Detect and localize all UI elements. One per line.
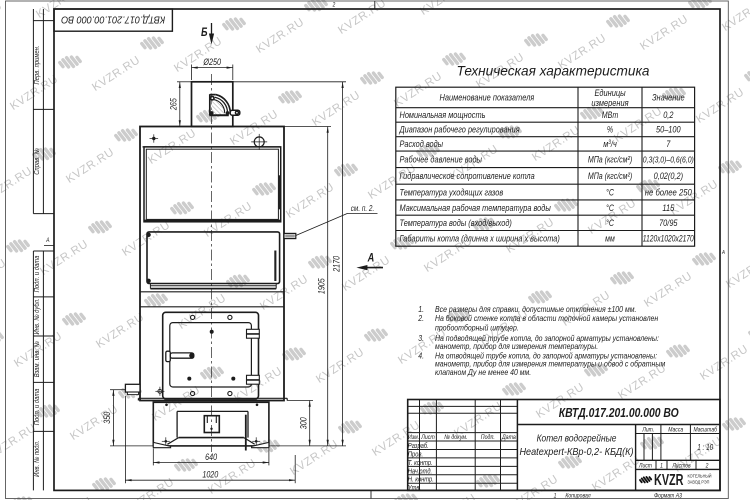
svg-text:265: 265	[169, 98, 179, 111]
svg-text:Котел водогрейные: Котел водогрейные	[537, 432, 617, 444]
svg-text:МВт: МВт	[602, 110, 619, 120]
svg-text:МПа (кгс/см²): МПа (кгс/см²)	[588, 171, 633, 181]
svg-text:Т. контр.: Т. контр.	[408, 459, 433, 467]
svg-text:3.: 3.	[418, 333, 424, 343]
svg-text:измерения: измерения	[591, 97, 629, 108]
svg-text:пробоотборный штуцер.: пробоотборный штуцер.	[435, 323, 519, 333]
svg-text:Подп. и дата: Подп. и дата	[32, 388, 41, 425]
svg-text:°С: °С	[606, 203, 614, 213]
svg-text:Номинальная мощность: Номинальная мощность	[400, 109, 486, 120]
svg-text:2: 2	[332, 2, 336, 9]
svg-text:4.: 4.	[418, 351, 424, 361]
svg-text:Температура воды (вход/выход): Температура воды (вход/выход)	[400, 217, 513, 228]
svg-text:Ø250: Ø250	[202, 57, 221, 67]
svg-text:1905: 1905	[317, 278, 327, 294]
svg-text:%: %	[607, 125, 613, 135]
svg-text:Расход воды: Расход воды	[400, 138, 444, 149]
svg-text:0,02(0,2): 0,02(0,2)	[654, 170, 684, 181]
svg-text:0,2: 0,2	[663, 109, 674, 120]
svg-text:Н. контр.: Н. контр.	[408, 476, 434, 484]
svg-text:КВТД.017.201.00.000 ВО: КВТД.017.201.00.000 ВО	[559, 405, 679, 420]
svg-text:Утв.: Утв.	[407, 484, 421, 492]
svg-text:Рабочее давление воды: Рабочее давление воды	[400, 154, 482, 165]
svg-text:Габариты котла (длинна х ширин: Габариты котла (длинна х ширина х высота…	[400, 233, 560, 244]
svg-text:°С: °С	[606, 218, 614, 228]
svg-text:Разраб.: Разраб.	[408, 441, 429, 450]
svg-text:ЗАВОД РЭП: ЗАВОД РЭП	[688, 479, 710, 485]
svg-text:Диапазон рабочего регулировани: Диапазон рабочего регулирования	[399, 124, 520, 135]
svg-text:Лит.: Лит.	[642, 427, 655, 434]
svg-text:Взам. инв. №: Взам. инв. №	[33, 341, 41, 377]
svg-text:Подп.: Подп.	[481, 435, 495, 442]
svg-text:Температура уходящих газов: Температура уходящих газов	[400, 186, 504, 197]
svg-text:Пров.: Пров.	[408, 451, 423, 459]
svg-text:Инв. № дубл.: Инв. № дубл.	[32, 298, 41, 334]
svg-text:Подп. и дата: Подп. и дата	[32, 255, 41, 292]
svg-text:Листов: Листов	[671, 463, 690, 470]
svg-text:Б: Б	[201, 27, 208, 39]
svg-text:70/95: 70/95	[659, 217, 678, 228]
svg-text:KVZR: KVZR	[654, 472, 684, 489]
svg-text:640: 640	[205, 452, 217, 462]
svg-text:1 : 10: 1 : 10	[697, 442, 713, 452]
svg-text:Перв. примен.: Перв. примен.	[33, 46, 41, 85]
svg-text:Инв. № подл.: Инв. № подл.	[32, 441, 41, 477]
svg-text:мм: мм	[605, 234, 615, 244]
svg-text:Максимальная рабочая температу: Максимальная рабочая температура воды	[400, 202, 551, 213]
svg-text:Дата: Дата	[501, 435, 516, 442]
svg-text:см. п. 2.: см. п. 2.	[351, 203, 375, 213]
svg-text:Лист: Лист	[638, 463, 652, 470]
svg-text:Масса: Масса	[668, 427, 683, 434]
svg-text:Техническая характеристика: Техническая характеристика	[457, 62, 650, 78]
svg-text:Гидравлическое сопротивление к: Гидравлическое сопротивление котла	[400, 170, 535, 181]
svg-text:7: 7	[666, 138, 670, 149]
svg-text:50–100: 50–100	[656, 124, 681, 135]
svg-text:1: 1	[660, 463, 663, 470]
svg-text:КОТЕЛЬНЫЙ: КОТЕЛЬНЫЙ	[688, 473, 712, 479]
svg-text:№ докум.: № докум.	[444, 433, 467, 441]
svg-text:0,3(3,0)–0,6(6,0): 0,3(3,0)–0,6(6,0)	[643, 156, 694, 165]
svg-text:115: 115	[662, 202, 674, 213]
svg-text:Нач.отд.: Нач.отд.	[408, 467, 432, 476]
svg-text:МПа (кгс/см²): МПа (кгс/см²)	[588, 155, 633, 165]
svg-text:2170: 2170	[332, 255, 342, 272]
svg-text:1120х1020х2170: 1120х1020х2170	[643, 234, 695, 244]
svg-text:Формат А3: Формат А3	[654, 493, 683, 499]
svg-text:Heatexpert-КВр-0,2- КБД(К): Heatexpert-КВр-0,2- КБД(К)	[520, 446, 634, 458]
svg-text:А: А	[367, 253, 375, 265]
svg-text:А: А	[45, 238, 49, 245]
svg-text:КВТД.017.201.00.000 ВО: КВТД.017.201.00.000 ВО	[61, 14, 165, 26]
svg-text:А: А	[721, 250, 725, 257]
svg-text:350: 350	[102, 411, 112, 423]
svg-text:Масштаб: Масштаб	[693, 427, 717, 434]
svg-text:1020: 1020	[202, 470, 218, 480]
svg-text:2.: 2.	[417, 313, 424, 323]
svg-text:Справ. №: Справ. №	[33, 148, 41, 175]
svg-text:1: 1	[554, 493, 557, 499]
svg-text:Наименование показателя: Наименование показателя	[440, 92, 535, 103]
svg-text:Лист: Лист	[420, 435, 434, 442]
svg-text:Копировал: Копировал	[565, 493, 591, 499]
svg-text:300: 300	[299, 417, 309, 429]
svg-text:°С: °С	[606, 188, 614, 198]
svg-text:клапаном Ду не менее 40 мм.: клапаном Ду не менее 40 мм.	[435, 367, 531, 377]
svg-text:Значение: Значение	[652, 92, 685, 103]
svg-text:м3/ч: м3/ч	[603, 138, 617, 149]
svg-text:не более 250: не более 250	[645, 187, 693, 197]
svg-text:Изм.: Изм.	[408, 435, 419, 442]
